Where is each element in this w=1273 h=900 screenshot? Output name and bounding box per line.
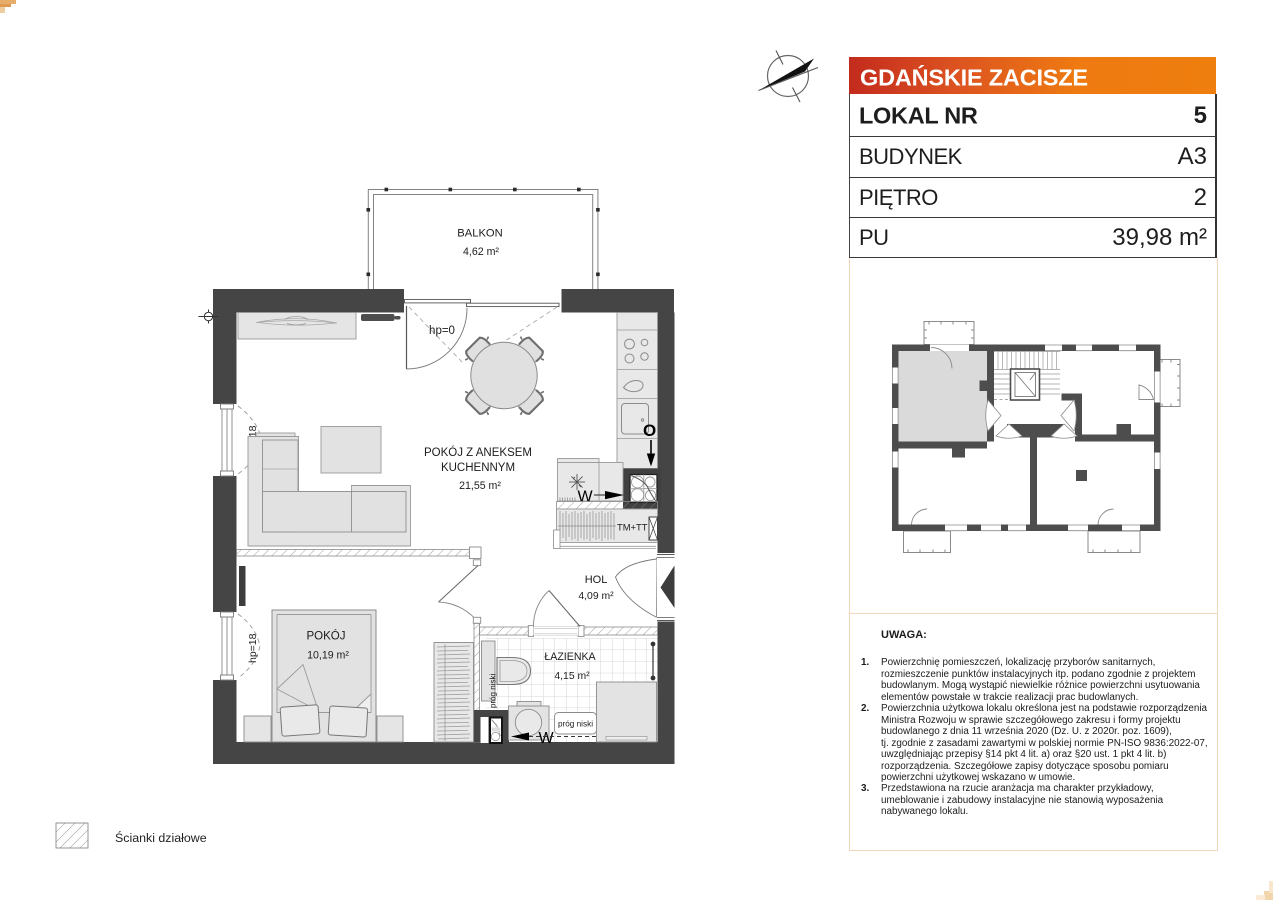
- svg-text:4,62 m²: 4,62 m²: [463, 246, 499, 258]
- svg-text:hp=18: hp=18: [247, 633, 259, 663]
- svg-text:BALKON: BALKON: [457, 228, 502, 240]
- svg-text:O: O: [643, 421, 656, 440]
- svg-text:Ścianki działowe: Ścianki działowe: [115, 830, 207, 845]
- svg-text:KUCHENNYM: KUCHENNYM: [441, 462, 515, 474]
- svg-text:hp=0: hp=0: [429, 325, 455, 337]
- svg-text:próg niski: próg niski: [558, 720, 593, 729]
- svg-text:W: W: [539, 730, 555, 747]
- svg-text:HOL: HOL: [585, 574, 608, 586]
- svg-text:10,19 m²: 10,19 m²: [307, 650, 349, 662]
- svg-text:POKÓJ Z ANEKSEM: POKÓJ Z ANEKSEM: [424, 446, 532, 459]
- svg-text:21,55 m²: 21,55 m²: [459, 480, 501, 492]
- svg-text:TM+TT: TM+TT: [617, 522, 648, 533]
- svg-text:4,09 m²: 4,09 m²: [578, 591, 614, 602]
- svg-text:4,15 m²: 4,15 m²: [554, 671, 590, 682]
- svg-text:próg niski: próg niski: [489, 674, 498, 708]
- svg-text:ŁAZIENKA: ŁAZIENKA: [544, 651, 596, 663]
- svg-text:POKÓJ: POKÓJ: [307, 630, 346, 643]
